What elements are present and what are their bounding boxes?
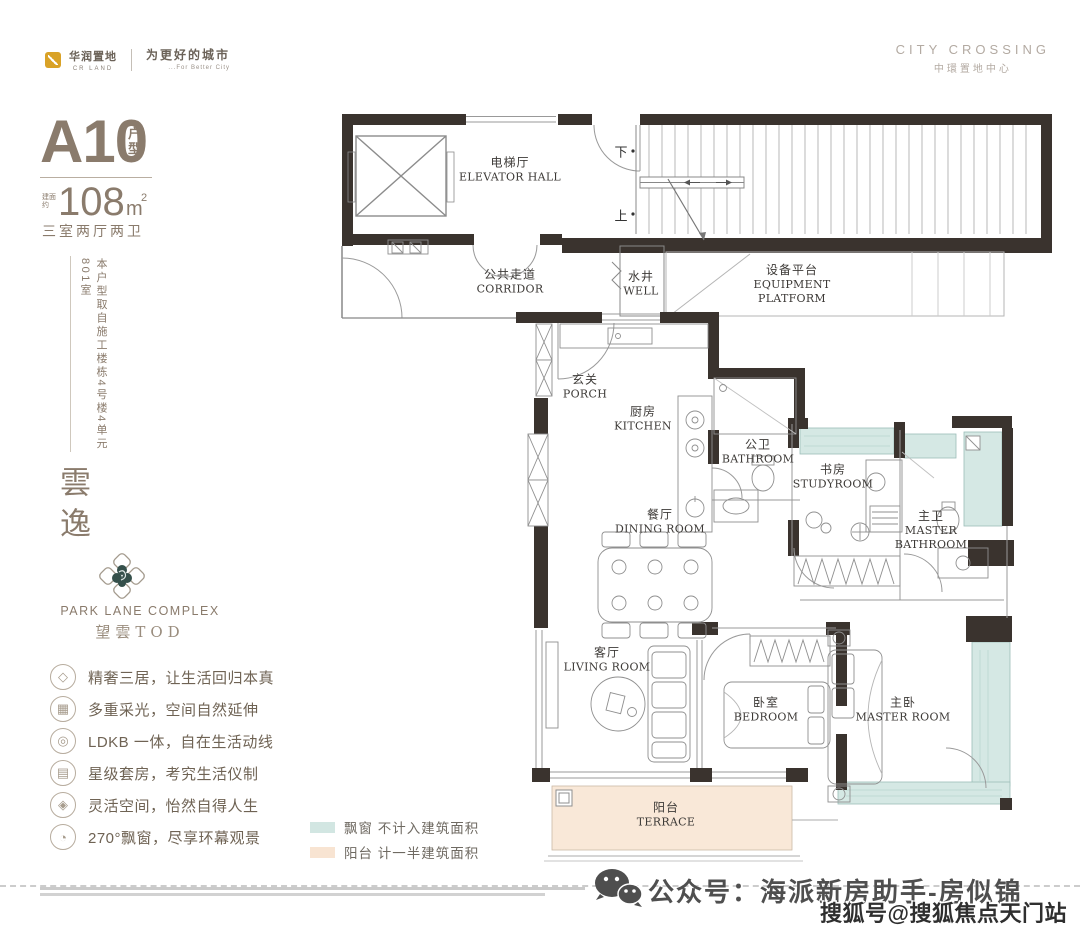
room-label-dining-room: 餐厅 DINING ROOM	[605, 508, 715, 537]
stair-down-label: 下	[614, 142, 627, 161]
floorplan-poster: 华润置地 CR LAND 为更好的城市 ...For Better City C…	[0, 0, 1080, 932]
room-label-equipment-platform: 设备平台 EQUIPMENT PLATFORM	[746, 263, 838, 306]
room-label-bedroom: 卧室 BEDROOM	[721, 696, 811, 725]
sohu-watermark: 搜狐号@搜狐焦点天门站	[820, 896, 1067, 928]
room-label-terrace: 阳台 TERRACE	[621, 801, 711, 830]
wechat-icon	[592, 866, 644, 910]
disclaimer-text-line	[40, 893, 545, 896]
room-label-porch: 玄关 PORCH	[550, 373, 620, 402]
floorplan-svg	[0, 0, 1080, 932]
room-label-studyroom: 书房 STUDYROOM	[783, 463, 883, 492]
disclaimer-text-line	[40, 887, 585, 890]
elevator-stair-block	[342, 114, 1052, 277]
room-label-master-bathroom: 主卫 MASTER BATHROOM	[891, 509, 971, 552]
room-label-elevator-hall: 电梯厅 ELEVATOR HALL	[430, 156, 590, 185]
room-label-corridor: 公共走道 CORRIDOR	[450, 268, 570, 297]
room-label-well: 水井 WELL	[611, 270, 671, 299]
stairs	[631, 125, 1026, 240]
room-label-kitchen: 厨房 KITCHEN	[598, 405, 688, 434]
corridor-well-platform	[342, 246, 1004, 318]
stair-up-label: 上	[614, 206, 627, 225]
room-label-master-room: 主卧 MASTER ROOM	[848, 696, 958, 725]
room-label-living-room: 客厅 LIVING ROOM	[552, 646, 662, 675]
